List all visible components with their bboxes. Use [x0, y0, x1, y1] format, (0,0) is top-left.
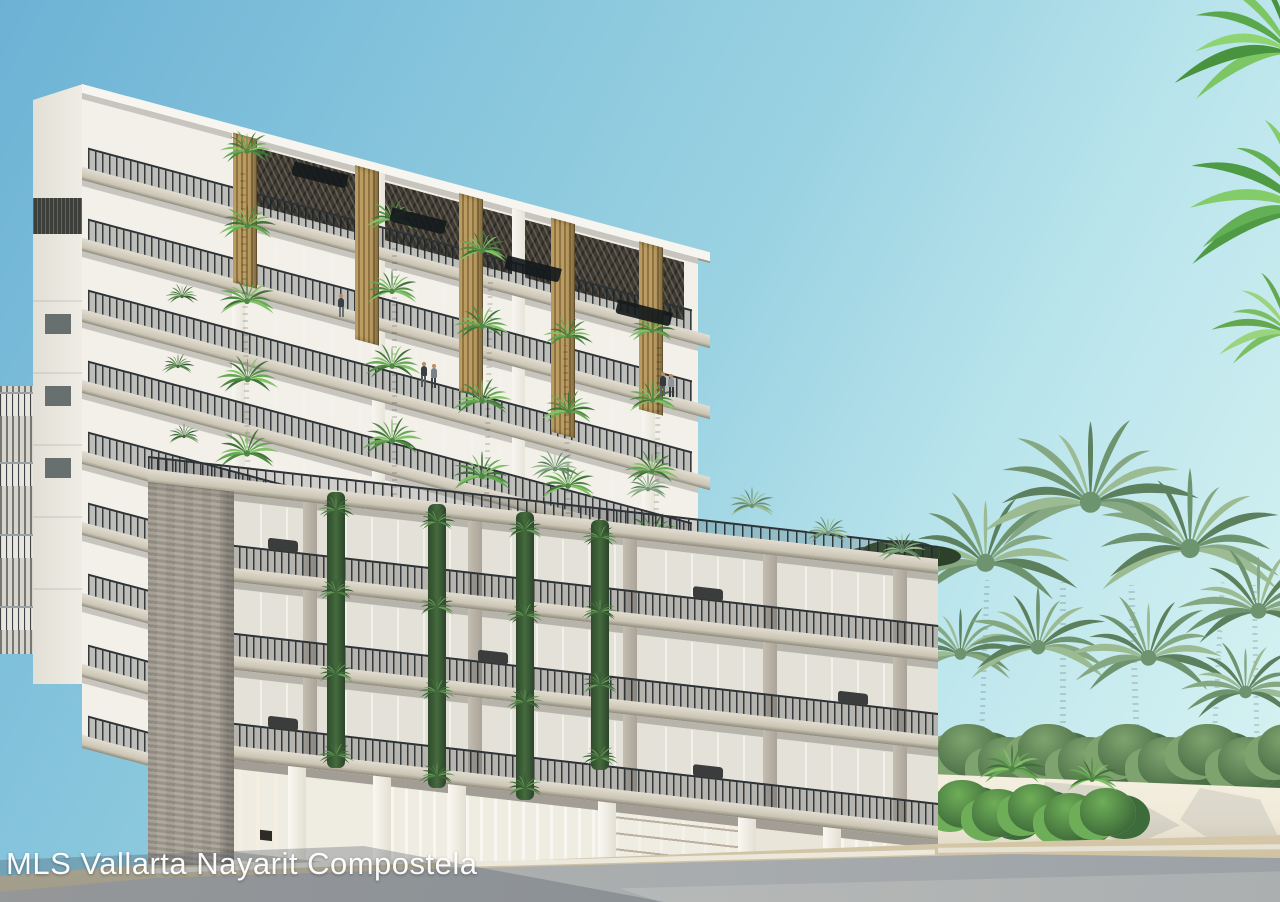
- balcony-palm: [208, 348, 287, 403]
- terrace-palm: [620, 467, 676, 506]
- person-torso: [338, 298, 344, 307]
- side-floor-line: [33, 444, 83, 446]
- balcony-palm: [536, 311, 600, 355]
- stone-clad-pier: [148, 482, 234, 874]
- vine-tuft: [502, 512, 548, 544]
- vine-tuft: [313, 574, 359, 606]
- vine-tuft: [577, 594, 623, 626]
- terrace-palm: [523, 444, 587, 488]
- person-torso: [421, 366, 427, 376]
- balcony-fern: [161, 280, 203, 309]
- overhanging-frond: [1190, 254, 1280, 392]
- balcony-person: [338, 294, 346, 318]
- rendering-canvas: MLS Vallarta Nayarit Compostela: [0, 0, 1280, 902]
- vine-tuft: [414, 589, 460, 621]
- balcony-palm: [209, 271, 285, 324]
- tower-side-face: [33, 84, 83, 684]
- vine-tuft: [313, 738, 359, 770]
- person-legs: [663, 386, 665, 396]
- person-torso: [431, 368, 437, 378]
- vine-column: [591, 520, 609, 770]
- person-legs: [339, 307, 341, 317]
- side-window: [45, 314, 71, 334]
- grove-palm: [1163, 627, 1280, 741]
- balcony-palm: [446, 298, 518, 348]
- annex-balcony-railing: [0, 462, 34, 486]
- vine-tuft: [502, 598, 548, 630]
- cafe-table: [258, 824, 274, 830]
- balcony-palm: [534, 384, 603, 432]
- annex-balcony-railing: [0, 606, 34, 630]
- terrace-palm: [800, 511, 856, 550]
- bush-palm: [1057, 752, 1127, 800]
- bush-palm: [970, 736, 1054, 794]
- side-floor-line: [33, 372, 83, 374]
- annex-balcony-railing: [0, 392, 34, 416]
- vine-tuft: [414, 504, 460, 536]
- person-torso: [660, 376, 666, 386]
- vine-tuft: [577, 740, 623, 772]
- vine-tuft: [502, 770, 548, 802]
- side-floor-line: [33, 300, 83, 302]
- balcony-palm: [353, 410, 431, 464]
- person-legs: [660, 386, 662, 396]
- person-legs: [424, 376, 426, 387]
- side-lattice-band: [33, 198, 83, 234]
- vine-tuft: [414, 674, 460, 706]
- scene-root: [0, 0, 1280, 902]
- vine-tuft: [577, 520, 623, 552]
- watermark-text: MLS Vallarta Nayarit Compostela: [6, 846, 478, 882]
- balcony-person: [659, 372, 668, 397]
- balcony-palm: [444, 371, 520, 424]
- vine-column: [516, 512, 534, 800]
- balcony-person: [430, 364, 439, 389]
- vine-tuft: [414, 758, 460, 790]
- person-legs: [669, 387, 671, 397]
- vine-tuft: [577, 667, 623, 699]
- vine-column: [428, 504, 446, 788]
- balcony-palm: [355, 337, 429, 388]
- balcony-palm: [211, 197, 284, 248]
- vine-column: [327, 492, 345, 768]
- person-legs: [431, 378, 433, 388]
- balcony-palm: [212, 124, 282, 172]
- balcony-fern: [157, 350, 199, 379]
- terrace-palm: [722, 482, 782, 524]
- side-floor-line: [33, 588, 83, 590]
- side-floor-line: [33, 516, 83, 518]
- side-window: [45, 458, 71, 478]
- person-legs: [672, 387, 674, 397]
- annex-balcony-railing: [0, 534, 34, 558]
- vine-tuft: [313, 656, 359, 688]
- side-window: [45, 386, 71, 406]
- vine-tuft: [502, 684, 548, 716]
- balcony-palm: [357, 264, 427, 312]
- person-torso: [668, 378, 674, 387]
- balcony-person: [420, 362, 429, 388]
- person-legs: [434, 378, 436, 388]
- cafe-chair: [260, 830, 272, 841]
- balcony-person: [668, 374, 676, 398]
- person-legs: [421, 376, 423, 387]
- person-legs: [342, 307, 344, 317]
- balcony-fern: [163, 420, 205, 449]
- vine-tuft: [313, 492, 359, 524]
- terrace-palm: [872, 527, 932, 569]
